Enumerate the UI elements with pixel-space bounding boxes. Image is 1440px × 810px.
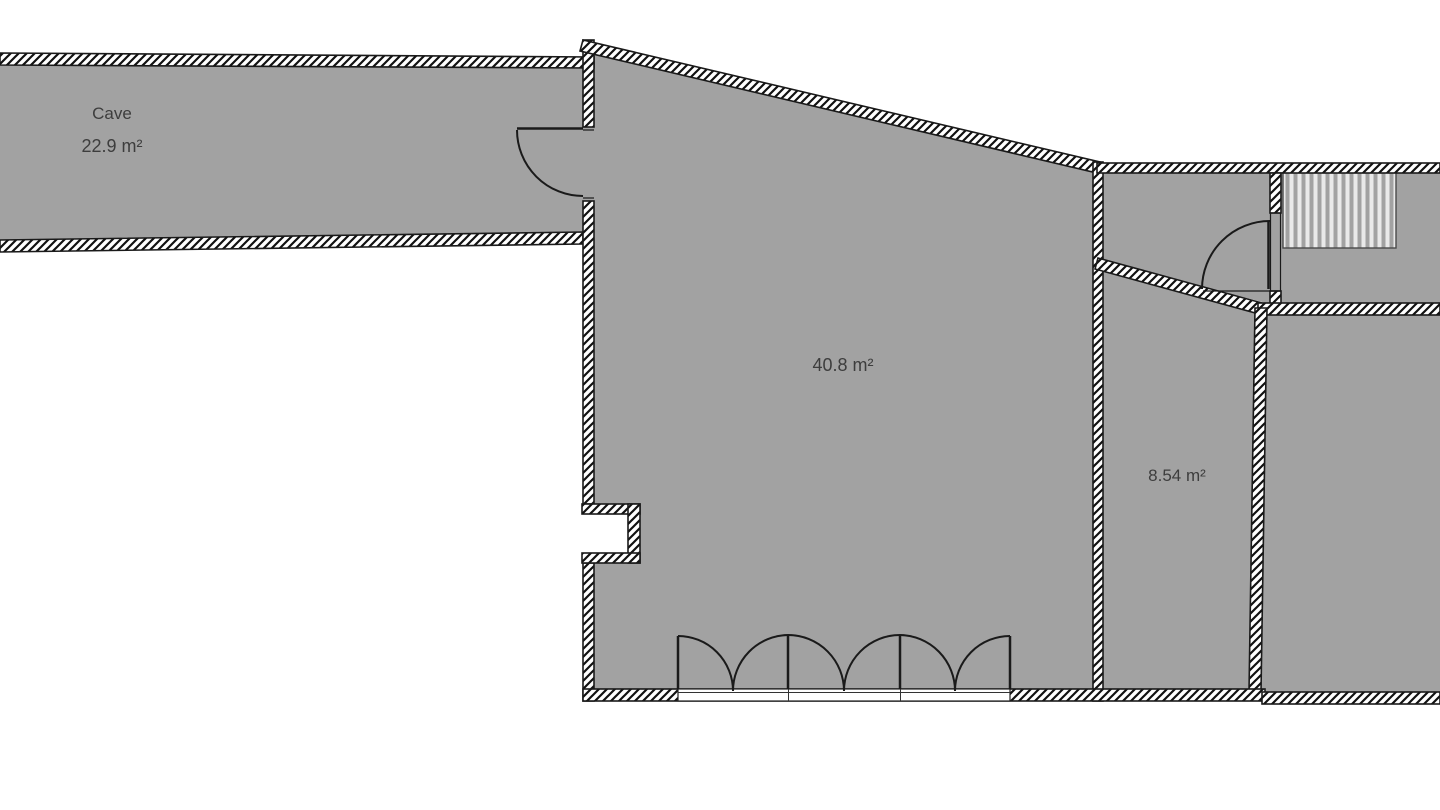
stairs-hatch [1283, 171, 1396, 248]
room-bottom-right-fill [1258, 312, 1440, 698]
wall-mid-right [1258, 303, 1440, 315]
wall-vestibule-right-upper [1270, 173, 1281, 213]
room-small-area-label: 8.54 m² [1148, 466, 1206, 485]
room-cave-area-label: 22.9 m² [81, 136, 142, 156]
floor-plan: Cave 22.9 m² 40.8 m² 8.54 m² [0, 0, 1440, 810]
wall-cave-top [0, 53, 594, 68]
wall-left-middle [583, 201, 594, 504]
wall-main-right [1093, 162, 1103, 701]
wall-top-right [1097, 163, 1440, 173]
room-main-area-label: 40.8 m² [812, 355, 873, 375]
wall-notch-bottom [582, 553, 640, 563]
wall-notch-void [581, 514, 628, 554]
wall-left-lower [583, 563, 594, 701]
wall-bottom-right-span [1262, 692, 1440, 704]
room-cave-name-label: Cave [92, 104, 132, 123]
rooms [0, 50, 1440, 698]
